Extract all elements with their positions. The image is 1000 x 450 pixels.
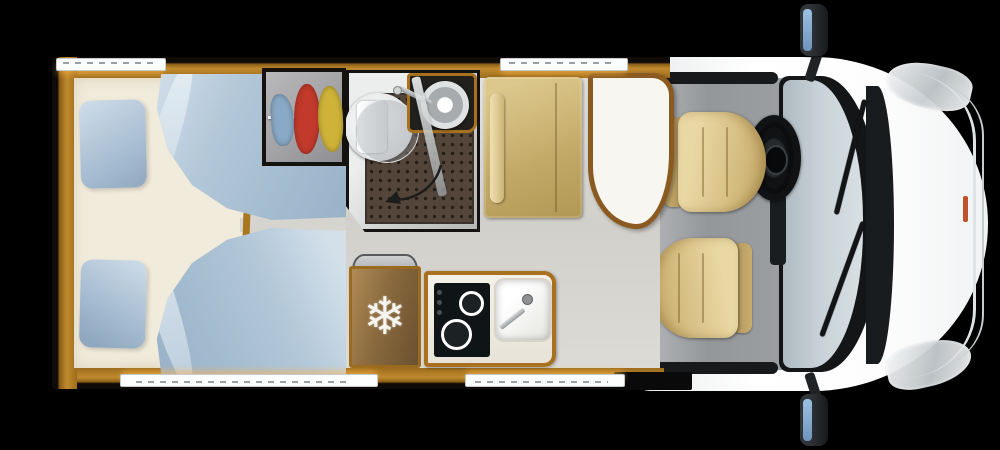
bathroom	[346, 70, 480, 232]
side-mirror-bottom	[784, 370, 844, 448]
driver-seat	[664, 112, 768, 212]
window-bottom-front-door	[465, 374, 625, 387]
bumper-edge-line	[928, 82, 984, 368]
seat-seam	[702, 127, 704, 197]
hob-knob	[437, 310, 442, 315]
window-top-rear	[56, 58, 166, 71]
kitchen-counter	[424, 271, 556, 367]
burner-icon	[459, 291, 484, 316]
pillow-bed-top	[79, 99, 147, 189]
side-mirror-top	[784, 4, 844, 82]
kitchen-sink	[496, 280, 550, 340]
snowflake-icon: ❄	[363, 291, 407, 343]
sink-faucet	[499, 308, 526, 330]
passenger-seat	[648, 238, 752, 338]
basin-faucet-base	[393, 86, 402, 95]
passenger-seat-cushion	[650, 238, 738, 338]
bench-armrest	[490, 93, 504, 203]
hob-knob	[437, 300, 442, 305]
clothes-red	[293, 84, 321, 155]
seat-seam	[726, 127, 728, 197]
mirror-glass	[803, 9, 812, 51]
two-burner-hob	[434, 283, 490, 357]
seat-seam	[678, 253, 680, 323]
clothes-blue	[269, 93, 296, 146]
pillow-bed-bottom	[79, 259, 147, 349]
window-top-front	[500, 58, 628, 71]
sink-faucet-head	[522, 294, 533, 305]
seat-seam	[702, 253, 704, 323]
refrigerator: ❄	[349, 266, 421, 368]
entry-step	[614, 372, 692, 390]
front-marker-light	[963, 196, 968, 222]
driver-seat-cushion	[678, 112, 766, 212]
window-bottom-rear	[120, 374, 378, 387]
motorhome-floorplan: ❄	[0, 0, 1000, 450]
clothes-yellow	[317, 86, 344, 153]
dinette-table	[588, 73, 674, 229]
wardrobe	[262, 68, 346, 166]
mirror-glass	[803, 399, 812, 441]
burner-icon	[441, 319, 472, 350]
door-swing-arrow-icon	[377, 161, 447, 211]
hob-knob	[437, 290, 442, 295]
dashboard-console	[770, 195, 786, 265]
